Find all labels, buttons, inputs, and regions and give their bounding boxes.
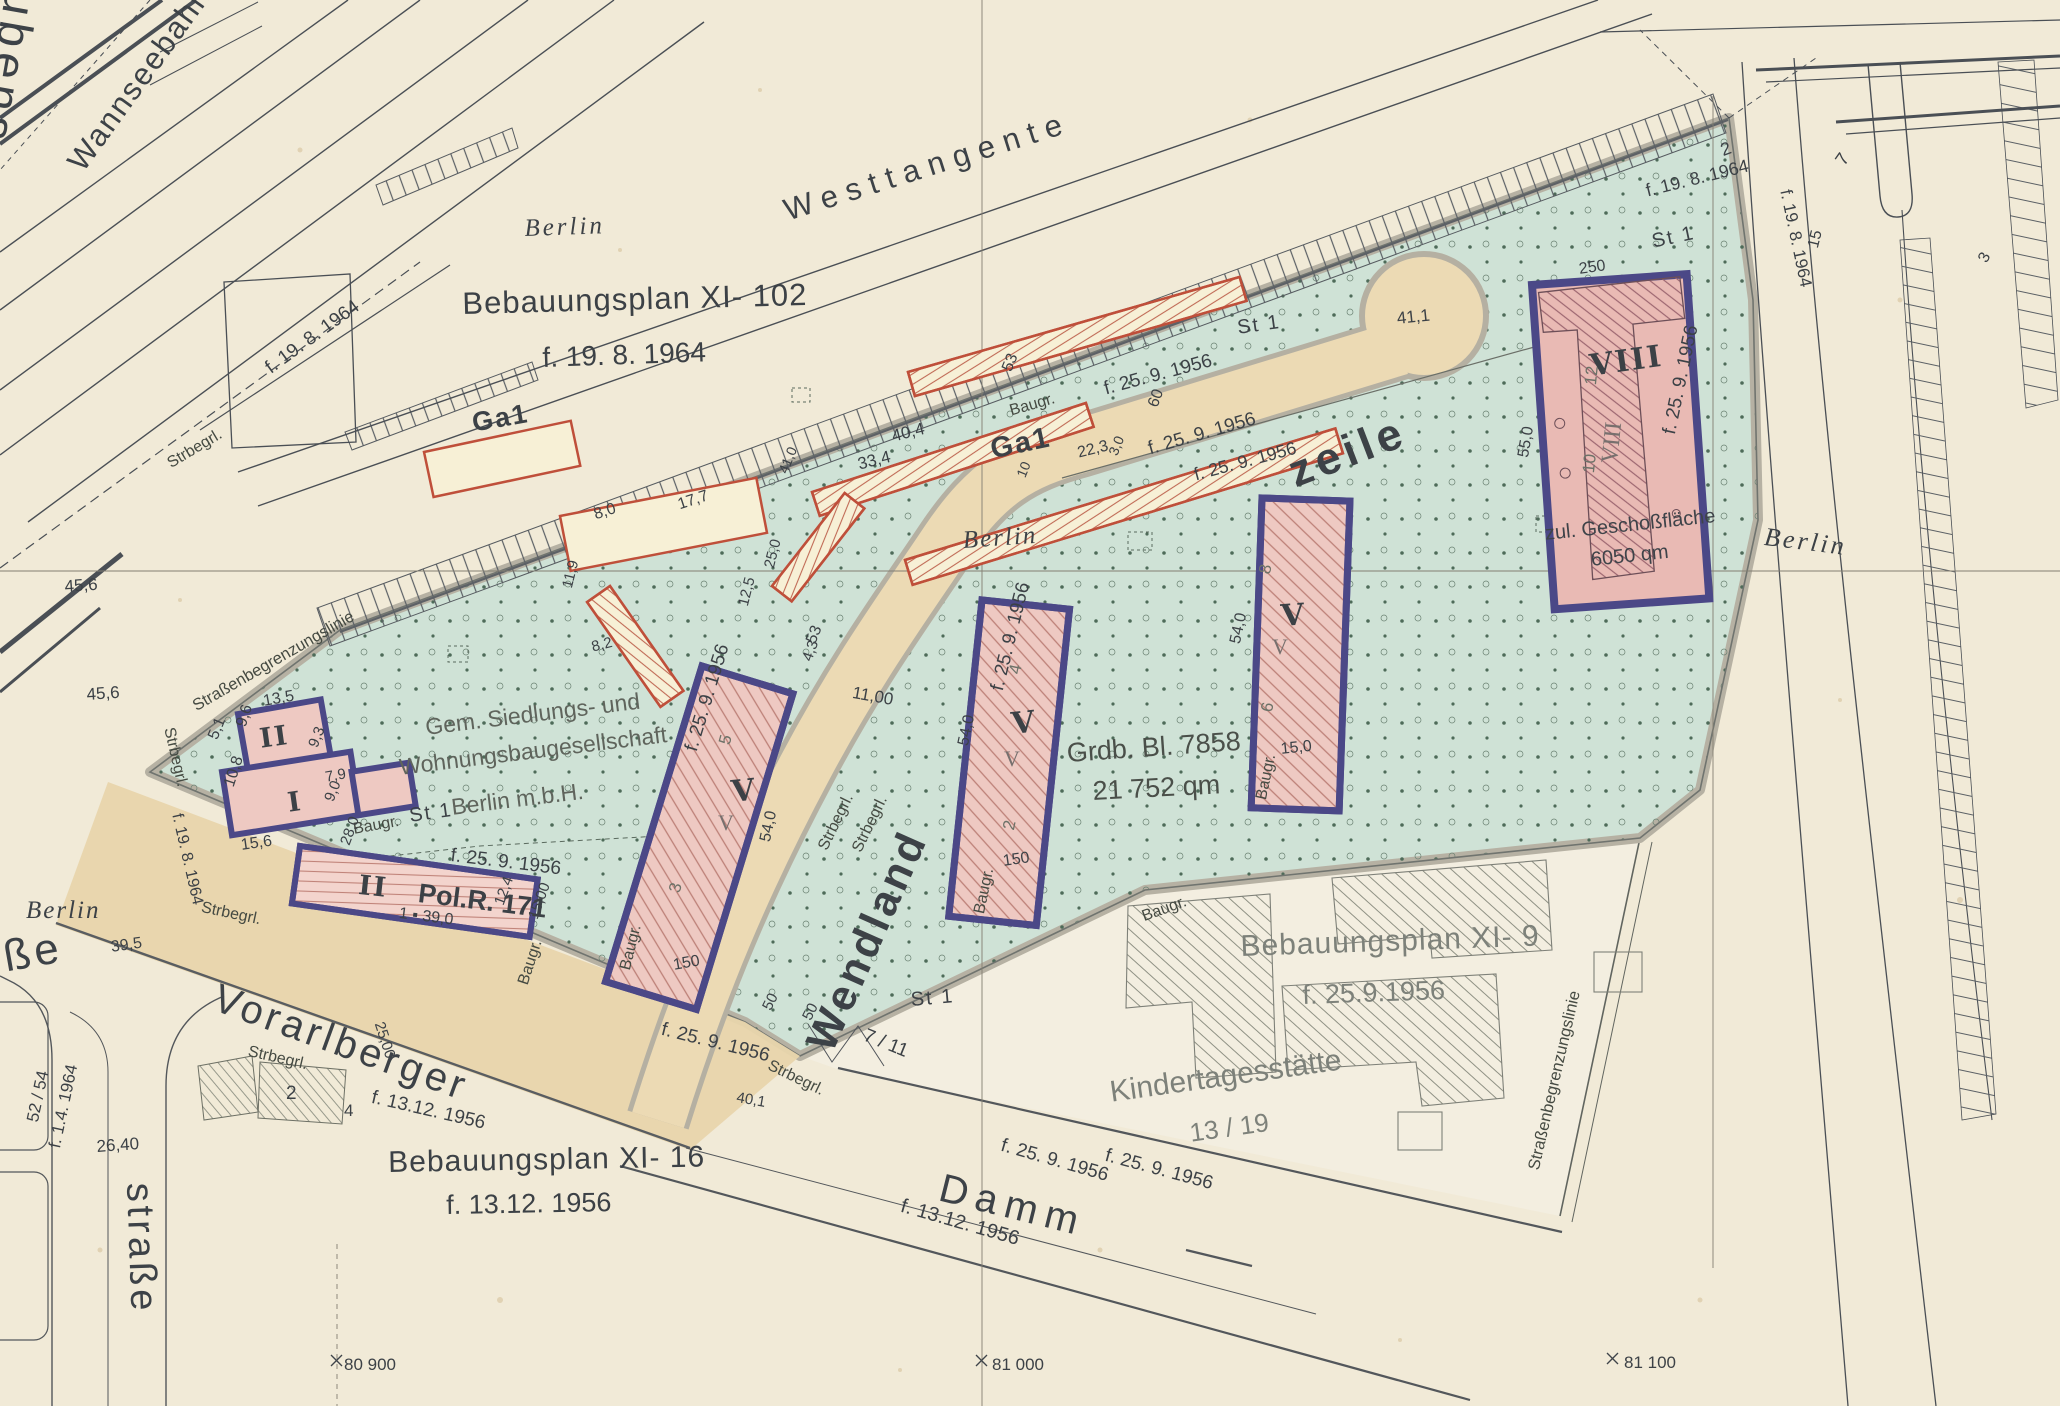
dim-label: 45,6	[64, 576, 98, 595]
storey-v-east-light: V	[1272, 636, 1288, 658]
plan-date-xi102: f. 19. 8. 1964	[542, 338, 706, 372]
plan-date-xi16: f. 13.12. 1956	[446, 1189, 612, 1219]
dim-label: 41,1	[1396, 307, 1431, 327]
storey-ii-small: II	[258, 722, 291, 753]
street-label-strasse-fragment: ße	[0, 926, 66, 980]
street-label-strasse: straße	[120, 1182, 163, 1315]
coord-label: 81 000	[992, 1356, 1044, 1373]
berlin-label-sw: Berlin	[26, 898, 101, 923]
dim-label: 26,40	[96, 1135, 140, 1155]
dim-label: 2	[286, 1084, 297, 1103]
parcel-area: 21 752 qm	[1092, 771, 1221, 805]
plan-date-xi9: f. 25.9.1956	[1302, 977, 1445, 1009]
storey-v-west-light: V	[718, 812, 734, 834]
storey-viii-light: VIII	[1598, 421, 1626, 465]
storey-v-east-bold: V	[1280, 600, 1307, 632]
coord-label: 81 100	[1624, 1354, 1676, 1371]
dim-label: 45,6	[86, 684, 120, 703]
dim-label: 4	[344, 1102, 353, 1119]
dim-label: 12	[1582, 365, 1601, 386]
plan-title-xi102: Bebauungsplan XI- 102	[462, 279, 808, 319]
storey-ii-long: II	[357, 872, 389, 902]
plan-title-xi16: Bebauungsplan XI- 16	[388, 1142, 705, 1178]
plan-scan: Westtangente Wannseebahn ubens zeile Wen…	[0, 0, 2060, 1406]
storey-v-mid-light: V	[1004, 748, 1020, 770]
storey-v-mid-bold: V	[1010, 707, 1038, 739]
dim-label: 10	[1580, 453, 1599, 474]
coord-label: 80 900	[344, 1356, 396, 1373]
berlin-label-center: Berlin	[962, 523, 1038, 553]
storey-v-west-bold: V	[730, 775, 758, 807]
existing-buildings	[198, 1056, 346, 1124]
rubensstrasse-lines	[0, 976, 224, 1406]
berlin-label-nw: Berlin	[524, 213, 605, 241]
grid-cross	[331, 1353, 1618, 1366]
dim-label: 15,0	[1280, 739, 1313, 758]
st1-label: St 1	[910, 986, 955, 1010]
